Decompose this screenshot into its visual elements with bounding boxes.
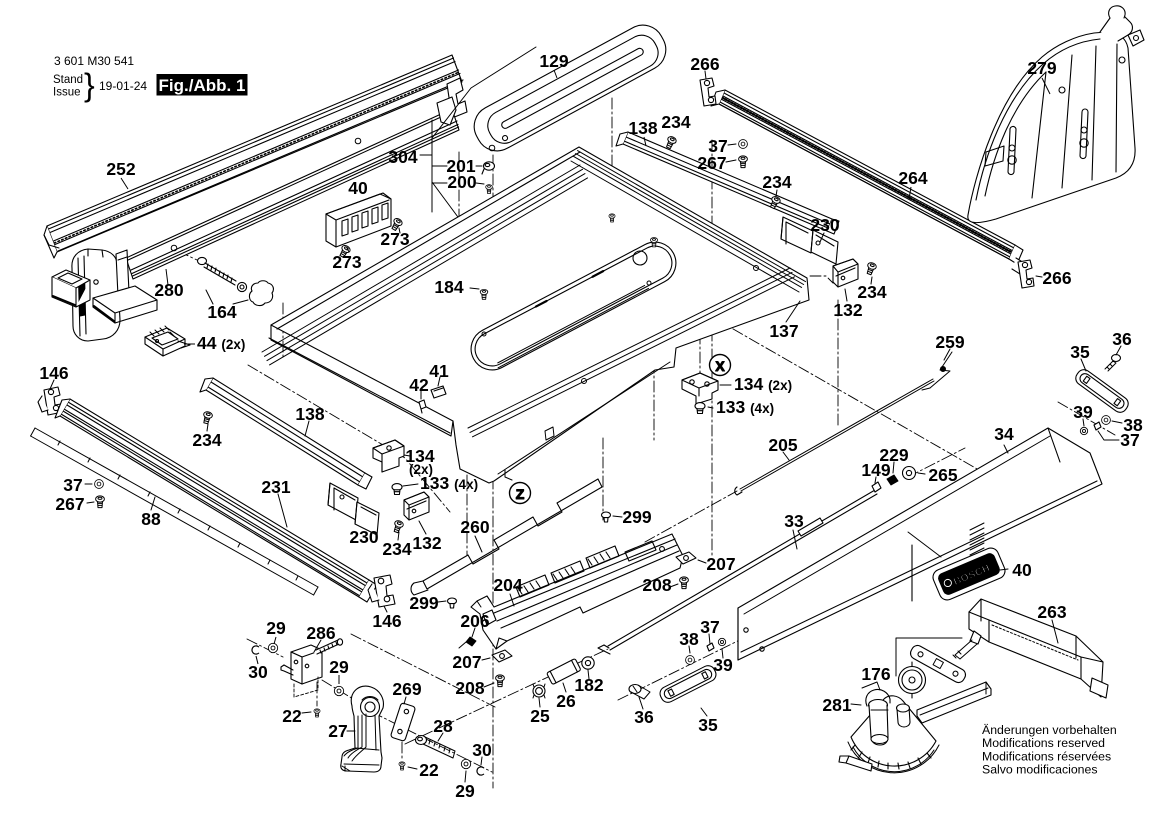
svg-text:X: X xyxy=(715,358,725,374)
svg-text:138: 138 xyxy=(628,118,657,138)
svg-text:Stand: Stand xyxy=(53,74,83,86)
svg-text:234: 234 xyxy=(382,539,411,559)
svg-text:Z: Z xyxy=(516,486,525,502)
svg-text:265: 265 xyxy=(928,465,957,485)
svg-text:40: 40 xyxy=(348,178,368,198)
svg-text:37: 37 xyxy=(63,475,82,495)
svg-text:234: 234 xyxy=(762,172,791,192)
svg-text:299: 299 xyxy=(622,507,651,527)
svg-text:Modifications reserved: Modifications reserved xyxy=(982,736,1105,750)
svg-text:280: 280 xyxy=(154,280,183,300)
svg-text:304: 304 xyxy=(388,147,417,167)
svg-text:35: 35 xyxy=(1070,342,1090,362)
svg-text:42: 42 xyxy=(409,375,429,395)
svg-text:33: 33 xyxy=(784,511,804,531)
svg-text:260: 260 xyxy=(460,517,489,537)
svg-text:231: 231 xyxy=(261,477,290,497)
svg-text:264: 264 xyxy=(898,168,927,188)
svg-text:206: 206 xyxy=(460,611,489,631)
svg-text:34: 34 xyxy=(994,424,1014,444)
svg-text:3 601 M30 541: 3 601 M30 541 xyxy=(54,54,134,68)
svg-text:Modifications réservées: Modifications réservées xyxy=(982,749,1111,763)
svg-text:273: 273 xyxy=(380,229,409,249)
svg-text:36: 36 xyxy=(1112,329,1132,349)
svg-text:30: 30 xyxy=(248,662,268,682)
svg-text:182: 182 xyxy=(574,675,603,695)
svg-text:39: 39 xyxy=(713,655,733,675)
svg-text:30: 30 xyxy=(472,740,492,760)
svg-text:29: 29 xyxy=(455,781,475,801)
svg-text:281: 281 xyxy=(822,695,851,715)
svg-text:25: 25 xyxy=(530,706,550,726)
svg-text:22: 22 xyxy=(419,760,439,780)
svg-text:41: 41 xyxy=(429,361,449,381)
svg-text:273: 273 xyxy=(332,252,361,272)
svg-text:35: 35 xyxy=(698,715,718,735)
svg-text:259: 259 xyxy=(935,332,964,352)
svg-text:266: 266 xyxy=(690,54,719,74)
svg-text:28: 28 xyxy=(433,716,453,736)
svg-text:164: 164 xyxy=(207,302,236,322)
svg-text:234: 234 xyxy=(661,112,690,132)
svg-text:Salvo modificaciones: Salvo modificaciones xyxy=(982,763,1098,777)
svg-text:286: 286 xyxy=(306,623,335,643)
svg-text:266: 266 xyxy=(1042,268,1071,288)
svg-text:37: 37 xyxy=(1120,430,1139,450)
svg-text:267: 267 xyxy=(697,153,726,173)
svg-text:129: 129 xyxy=(539,51,568,71)
svg-text:299: 299 xyxy=(409,593,438,613)
svg-text:39: 39 xyxy=(1073,402,1093,422)
svg-text:138: 138 xyxy=(295,404,324,424)
svg-text:29: 29 xyxy=(266,618,286,638)
svg-text:263: 263 xyxy=(1037,602,1066,622)
svg-text:230: 230 xyxy=(349,527,378,547)
svg-text:234: 234 xyxy=(857,282,886,302)
svg-text:19-01-24: 19-01-24 xyxy=(99,79,147,93)
svg-text:Issue: Issue xyxy=(53,87,81,99)
svg-text:267: 267 xyxy=(55,494,84,514)
svg-text:208: 208 xyxy=(455,678,484,698)
svg-text:234: 234 xyxy=(192,430,221,450)
svg-text:200: 200 xyxy=(447,172,476,192)
svg-text:40: 40 xyxy=(1012,560,1032,580)
svg-text:37: 37 xyxy=(700,617,719,637)
svg-text:146: 146 xyxy=(39,363,68,383)
svg-text:279: 279 xyxy=(1027,58,1056,78)
svg-text:184: 184 xyxy=(434,277,463,297)
svg-text:207: 207 xyxy=(452,652,481,672)
svg-text:38: 38 xyxy=(679,629,699,649)
svg-text:22: 22 xyxy=(282,706,302,726)
svg-text:269: 269 xyxy=(392,679,421,699)
svg-text:88: 88 xyxy=(141,509,161,529)
svg-text:146: 146 xyxy=(372,611,401,631)
svg-text:36: 36 xyxy=(634,707,654,727)
svg-text:29: 29 xyxy=(329,657,349,677)
svg-text:Fig./Abb. 1: Fig./Abb. 1 xyxy=(159,76,246,95)
svg-text:204: 204 xyxy=(493,575,522,595)
svg-text:207: 207 xyxy=(706,554,735,574)
svg-text:205: 205 xyxy=(768,435,797,455)
svg-text:}: } xyxy=(84,67,95,103)
svg-text:132: 132 xyxy=(412,533,441,553)
svg-text:176: 176 xyxy=(861,664,890,684)
svg-text:149: 149 xyxy=(861,460,890,480)
svg-text:27: 27 xyxy=(328,721,347,741)
svg-text:132: 132 xyxy=(833,300,862,320)
svg-text:137: 137 xyxy=(769,321,798,341)
svg-text:Änderungen vorbehalten: Änderungen vorbehalten xyxy=(982,723,1117,737)
svg-text:252: 252 xyxy=(106,159,135,179)
svg-text:26: 26 xyxy=(556,691,576,711)
svg-text:208: 208 xyxy=(642,575,671,595)
svg-text:230: 230 xyxy=(810,215,839,235)
